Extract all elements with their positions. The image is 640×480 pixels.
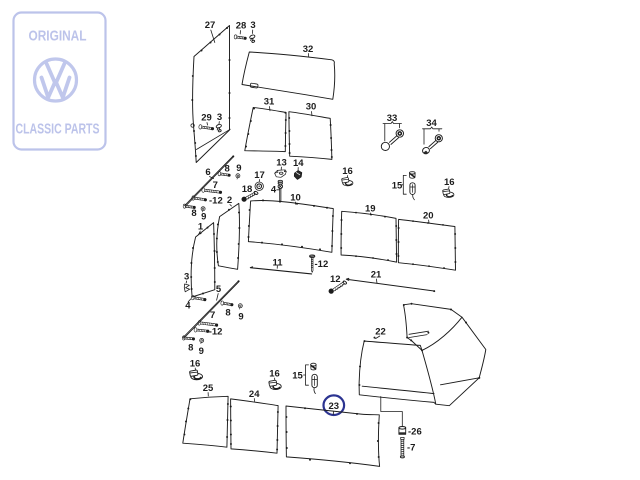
svg-text:-12: -12 [209,196,223,207]
svg-text:30: 30 [306,102,317,113]
svg-text:8: 8 [225,307,230,318]
svg-text:-12: -12 [315,259,329,270]
svg-text:2: 2 [227,195,232,206]
svg-text:22: 22 [375,327,386,338]
svg-text:8: 8 [188,343,193,354]
svg-text:-7: -7 [407,443,415,454]
svg-text:31: 31 [264,97,275,108]
svg-text:-12: -12 [209,326,223,337]
svg-text:18: 18 [242,184,253,195]
svg-text:14: 14 [293,158,304,169]
svg-text:-26: -26 [408,426,422,437]
svg-text:12: 12 [330,274,341,285]
svg-text:CLASSIC PARTS: CLASSIC PARTS [16,122,100,138]
svg-text:15: 15 [392,181,403,192]
svg-text:4: 4 [271,185,277,196]
svg-text:32: 32 [303,44,314,55]
svg-text:8: 8 [191,208,196,219]
svg-text:8: 8 [225,164,230,175]
svg-text:9: 9 [199,346,204,357]
svg-text:7: 7 [210,310,215,321]
svg-text:9: 9 [236,163,241,174]
svg-text:3: 3 [250,20,255,31]
svg-text:ORIGINAL: ORIGINAL [29,28,87,45]
svg-text:7: 7 [213,180,218,191]
svg-text:29: 29 [201,113,212,124]
svg-text:5: 5 [216,284,222,295]
svg-text:9: 9 [238,311,243,322]
svg-text:28: 28 [236,21,247,32]
svg-text:27: 27 [205,20,216,31]
svg-text:11: 11 [272,258,283,269]
svg-text:15: 15 [292,371,303,382]
